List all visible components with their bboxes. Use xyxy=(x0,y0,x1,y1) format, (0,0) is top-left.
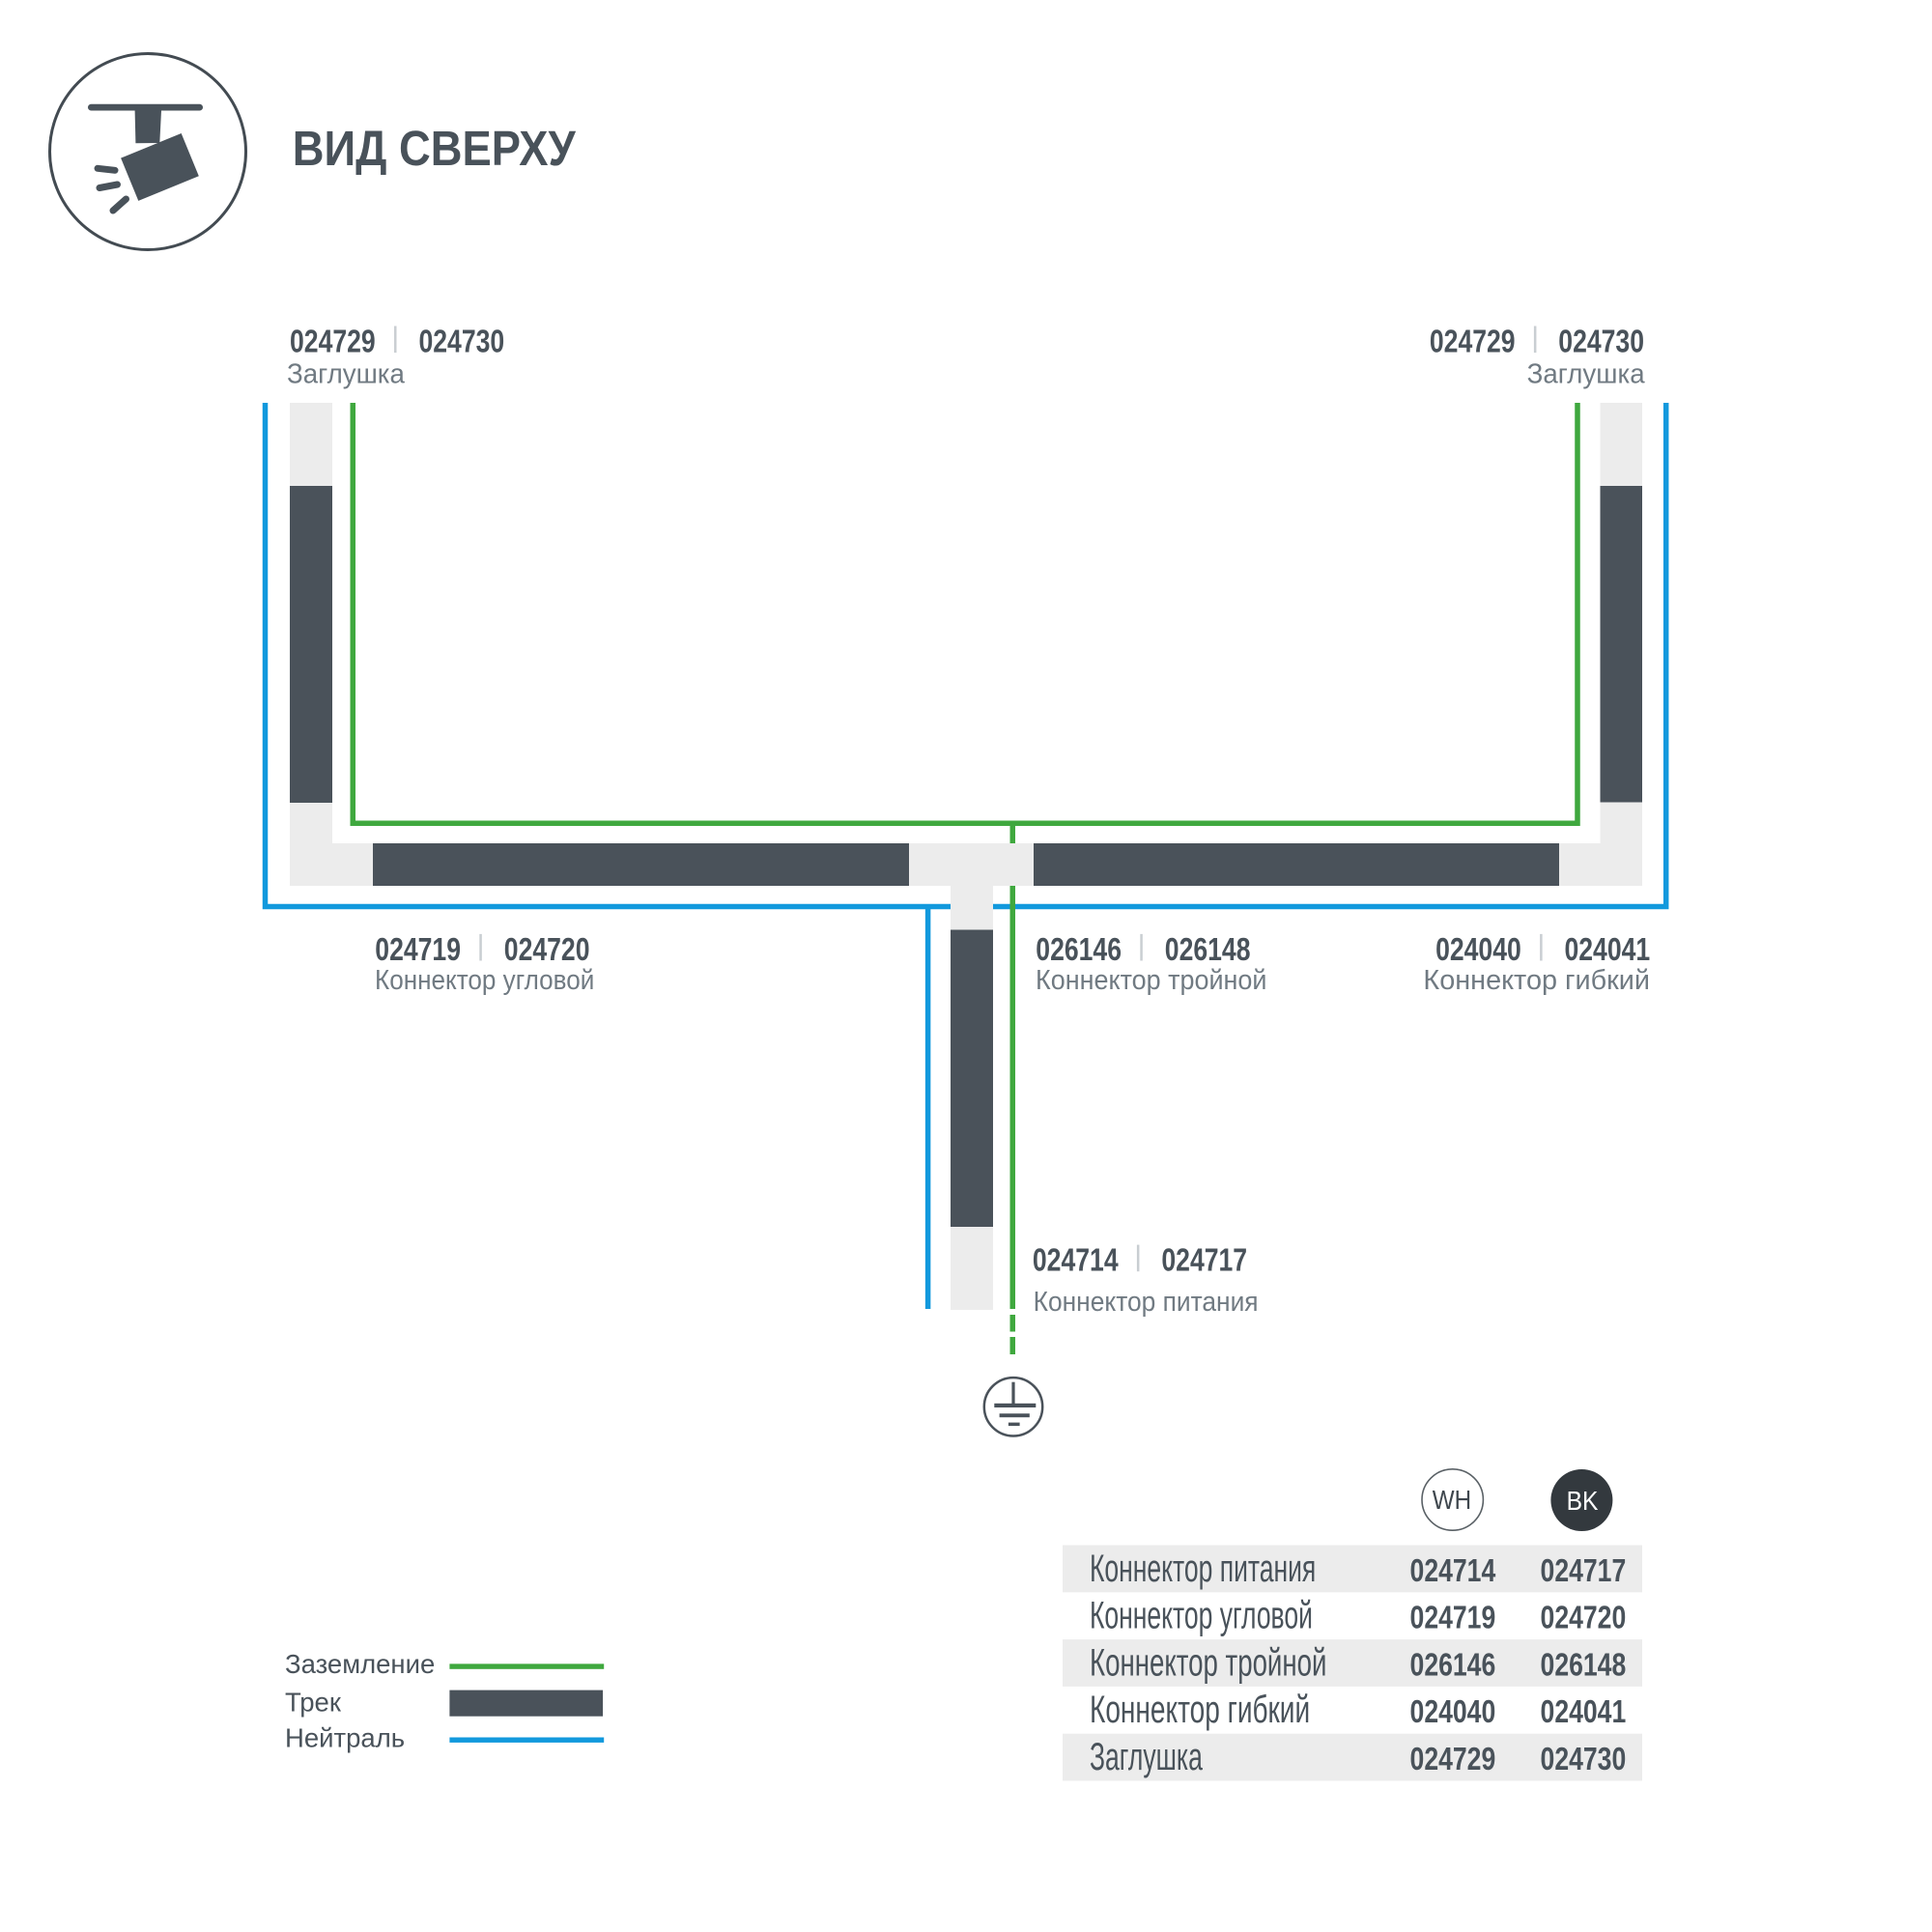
svg-text:Коннектор тройной: Коннектор тройной xyxy=(1090,1642,1326,1685)
svg-text:024719: 024719 xyxy=(375,932,461,968)
svg-text:024714: 024714 xyxy=(1033,1243,1119,1279)
svg-text:Заглушка: Заглушка xyxy=(1090,1737,1203,1778)
svg-text:024720: 024720 xyxy=(1541,1601,1627,1636)
svg-text:Коннектор питания: Коннектор питания xyxy=(1090,1548,1316,1590)
svg-text:024720: 024720 xyxy=(504,932,590,968)
svg-text:Коннектор гибкий: Коннектор гибкий xyxy=(1090,1690,1310,1732)
svg-text:024717: 024717 xyxy=(1161,1243,1247,1279)
svg-text:Нейтраль: Нейтраль xyxy=(285,1722,405,1752)
svg-text:026148: 026148 xyxy=(1165,932,1251,968)
svg-text:024730: 024730 xyxy=(1541,1742,1627,1777)
svg-text:Заглушка: Заглушка xyxy=(287,358,405,390)
svg-text:024729: 024729 xyxy=(1430,325,1516,360)
svg-text:WH: WH xyxy=(1433,1485,1471,1516)
svg-text:026146: 026146 xyxy=(1410,1648,1496,1684)
svg-text:024730: 024730 xyxy=(418,325,504,360)
svg-text:Коннектор угловой: Коннектор угловой xyxy=(375,964,594,996)
svg-text:ВИД СВЕРХУ: ВИД СВЕРХУ xyxy=(293,122,577,177)
svg-text:024040: 024040 xyxy=(1410,1694,1496,1730)
svg-text:024717: 024717 xyxy=(1541,1553,1627,1589)
svg-text:024040: 024040 xyxy=(1435,932,1521,968)
svg-text:024041: 024041 xyxy=(1564,932,1650,968)
svg-text:026148: 026148 xyxy=(1541,1648,1627,1684)
svg-text:024719: 024719 xyxy=(1410,1601,1496,1636)
svg-text:024730: 024730 xyxy=(1558,325,1644,360)
svg-text:024729: 024729 xyxy=(290,325,376,360)
svg-text:024041: 024041 xyxy=(1541,1694,1627,1730)
svg-text:024729: 024729 xyxy=(1410,1742,1496,1777)
svg-text:Заглушка: Заглушка xyxy=(1527,358,1645,390)
svg-text:Коннектор угловой: Коннектор угловой xyxy=(1090,1596,1313,1637)
svg-text:Коннектор тройной: Коннектор тройной xyxy=(1036,964,1266,995)
svg-text:Коннектор гибкий: Коннектор гибкий xyxy=(1423,965,1650,996)
svg-text:Заземление: Заземление xyxy=(285,1649,435,1679)
svg-text:Коннектор питания: Коннектор питания xyxy=(1034,1286,1259,1317)
svg-text:024714: 024714 xyxy=(1410,1553,1496,1589)
svg-text:026146: 026146 xyxy=(1036,932,1122,968)
svg-text:Трек: Трек xyxy=(285,1688,342,1718)
svg-text:BK: BK xyxy=(1567,1485,1599,1516)
